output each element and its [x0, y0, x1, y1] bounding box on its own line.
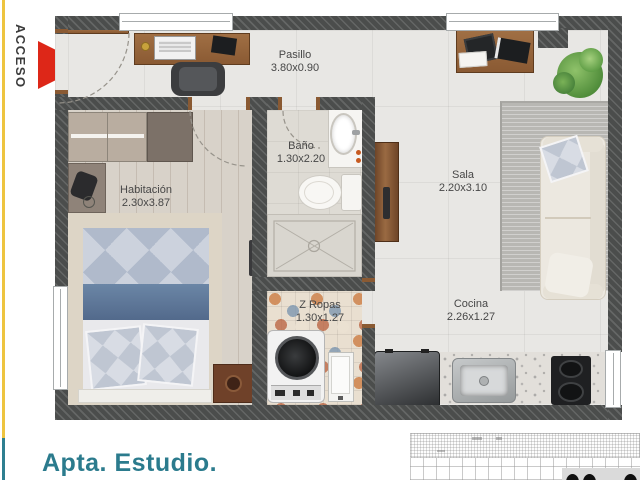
- plant-leaves: [579, 48, 603, 72]
- sofa-cushion-seam: [545, 217, 591, 219]
- grid-mark-1: [472, 437, 482, 440]
- wall-laundry-kitchen: [362, 328, 375, 405]
- window-kitchen-mullion: [613, 353, 614, 405]
- stove-burner-2: [558, 382, 584, 402]
- wall-top-middle: [232, 16, 447, 30]
- room-dims-cocina: 2.26x1.27: [447, 311, 495, 324]
- pantry-door-handle: [383, 187, 390, 219]
- soap-dot-2: [356, 158, 361, 163]
- soap-dot-1: [356, 150, 361, 155]
- plant: [557, 52, 603, 98]
- washer-lid: [275, 336, 319, 380]
- nightstand-speaker: [225, 375, 242, 392]
- stove: [551, 356, 591, 405]
- laptop-keyboard: [159, 41, 191, 52]
- window-living: [446, 13, 559, 31]
- grid-mark-2: [496, 437, 502, 440]
- window-bedroom: [53, 286, 68, 390]
- refrigerator: [374, 351, 440, 409]
- window-kitchen: [605, 350, 621, 408]
- utility-sink-basin: [331, 356, 350, 394]
- floor-entry-threshold: [55, 33, 68, 93]
- access-label: ACCESO: [13, 24, 28, 89]
- sofa-backrest: [590, 143, 605, 293]
- wall-bathroom-living-upper: [362, 97, 375, 282]
- pantry-door: [374, 142, 399, 242]
- room-label-bano: Baño 1.30x2.20: [277, 140, 325, 165]
- refrigerator-hinge-2: [421, 349, 429, 353]
- jamb-bedroom-right: [246, 97, 250, 110]
- jamb-entry-bottom: [55, 90, 68, 94]
- shower: [267, 214, 362, 277]
- refrigerator-hinge-1: [385, 349, 393, 353]
- room-name-cocina: Cocina: [447, 298, 495, 311]
- scale-grid-fine: [410, 433, 640, 458]
- office-chair: [171, 62, 225, 96]
- room-dims-bano: 1.30x2.20: [277, 153, 325, 166]
- window-hallway-mullion: [122, 21, 230, 22]
- room-dims-habitacion: 2.30x3.87: [120, 197, 172, 210]
- desk-cup: [141, 42, 150, 51]
- kitchen-sink-drain: [479, 376, 489, 386]
- room-dims-pasillo: 3.80x0.90: [271, 62, 319, 75]
- room-name-sala: Sala: [439, 169, 487, 182]
- bed-fold: [83, 284, 209, 322]
- bed-pillow-2: [137, 323, 199, 387]
- washer-knob-2: [293, 390, 300, 396]
- window-hallway: [119, 13, 233, 31]
- utility-sink: [328, 352, 354, 402]
- wall-hallway-c: [316, 97, 362, 110]
- desk-notebook: [211, 35, 237, 55]
- column-living: [538, 28, 568, 48]
- plant-leaves-2: [553, 72, 575, 94]
- jamb-laundry-top: [362, 278, 375, 282]
- jamb-bedroom-left: [188, 97, 192, 110]
- room-label-zropas: Z Ropas 1.30x1.27: [296, 299, 344, 324]
- bed-headboard: [78, 389, 212, 403]
- bedroom-chair-ring: [83, 196, 95, 208]
- grid-mark-3: [437, 450, 445, 452]
- nightstand: [213, 364, 253, 403]
- room-name-habitacion: Habitación: [120, 184, 172, 197]
- room-dims-zropas: 1.30x1.27: [296, 312, 344, 325]
- wall-bottom: [55, 405, 622, 420]
- table-paper: [459, 51, 488, 68]
- wardrobe-right: [147, 112, 193, 162]
- bedroom-desk: [68, 163, 106, 213]
- room-label-habitacion: Habitación 2.30x3.87: [120, 184, 172, 209]
- jamb-laundry-bottom: [362, 324, 375, 328]
- wardrobe-left: [68, 112, 147, 162]
- window-living-mullion: [449, 21, 556, 22]
- room-label-sala: Sala 2.20x3.10: [439, 169, 487, 194]
- washer-panel: [271, 385, 321, 400]
- jamb-entry-top: [55, 29, 68, 33]
- washer-knob-1: [275, 390, 285, 396]
- washer-knob-3: [307, 390, 314, 396]
- wall-bathroom-laundry: [252, 277, 375, 291]
- sofa-cushion: [544, 251, 594, 298]
- window-bedroom-mullion: [60, 289, 61, 387]
- room-label-cocina: Cocina 2.26x1.27: [447, 298, 495, 323]
- wardrobe-divider: [107, 113, 108, 161]
- utility-sink-drain: [338, 396, 343, 400]
- jamb-bathroom-left: [278, 97, 282, 110]
- wall-hallway-a: [55, 97, 188, 110]
- accent-bar-yellow: [2, 0, 5, 438]
- bathroom-faucet: [352, 130, 360, 135]
- page-title: Apta. Estudio.: [42, 449, 217, 478]
- floorplan-page: ACCESO: [0, 0, 640, 480]
- kitchen-sink: [452, 358, 516, 403]
- wall-bedroom-bathroom: [252, 97, 267, 405]
- office-chair-seat: [179, 67, 217, 91]
- room-label-pasillo: Pasillo 3.80x0.90: [271, 49, 319, 74]
- room-name-pasillo: Pasillo: [271, 49, 319, 62]
- toilet-bowl: [298, 175, 342, 210]
- room-dims-sala: 2.20x3.10: [439, 182, 487, 195]
- wall-right-upper: [608, 16, 622, 352]
- wall-right-lower: [608, 406, 622, 420]
- jamb-bathroom-right: [316, 97, 320, 110]
- room-name-zropas: Z Ropas: [296, 299, 344, 312]
- washing-machine: [267, 330, 325, 403]
- stove-burner-1: [559, 360, 583, 378]
- toilet-tank: [341, 174, 362, 211]
- toilet-seat: [304, 181, 334, 204]
- accent-bar-teal: [2, 438, 5, 480]
- laptop: [154, 36, 196, 60]
- room-name-bano: Baño: [277, 140, 325, 153]
